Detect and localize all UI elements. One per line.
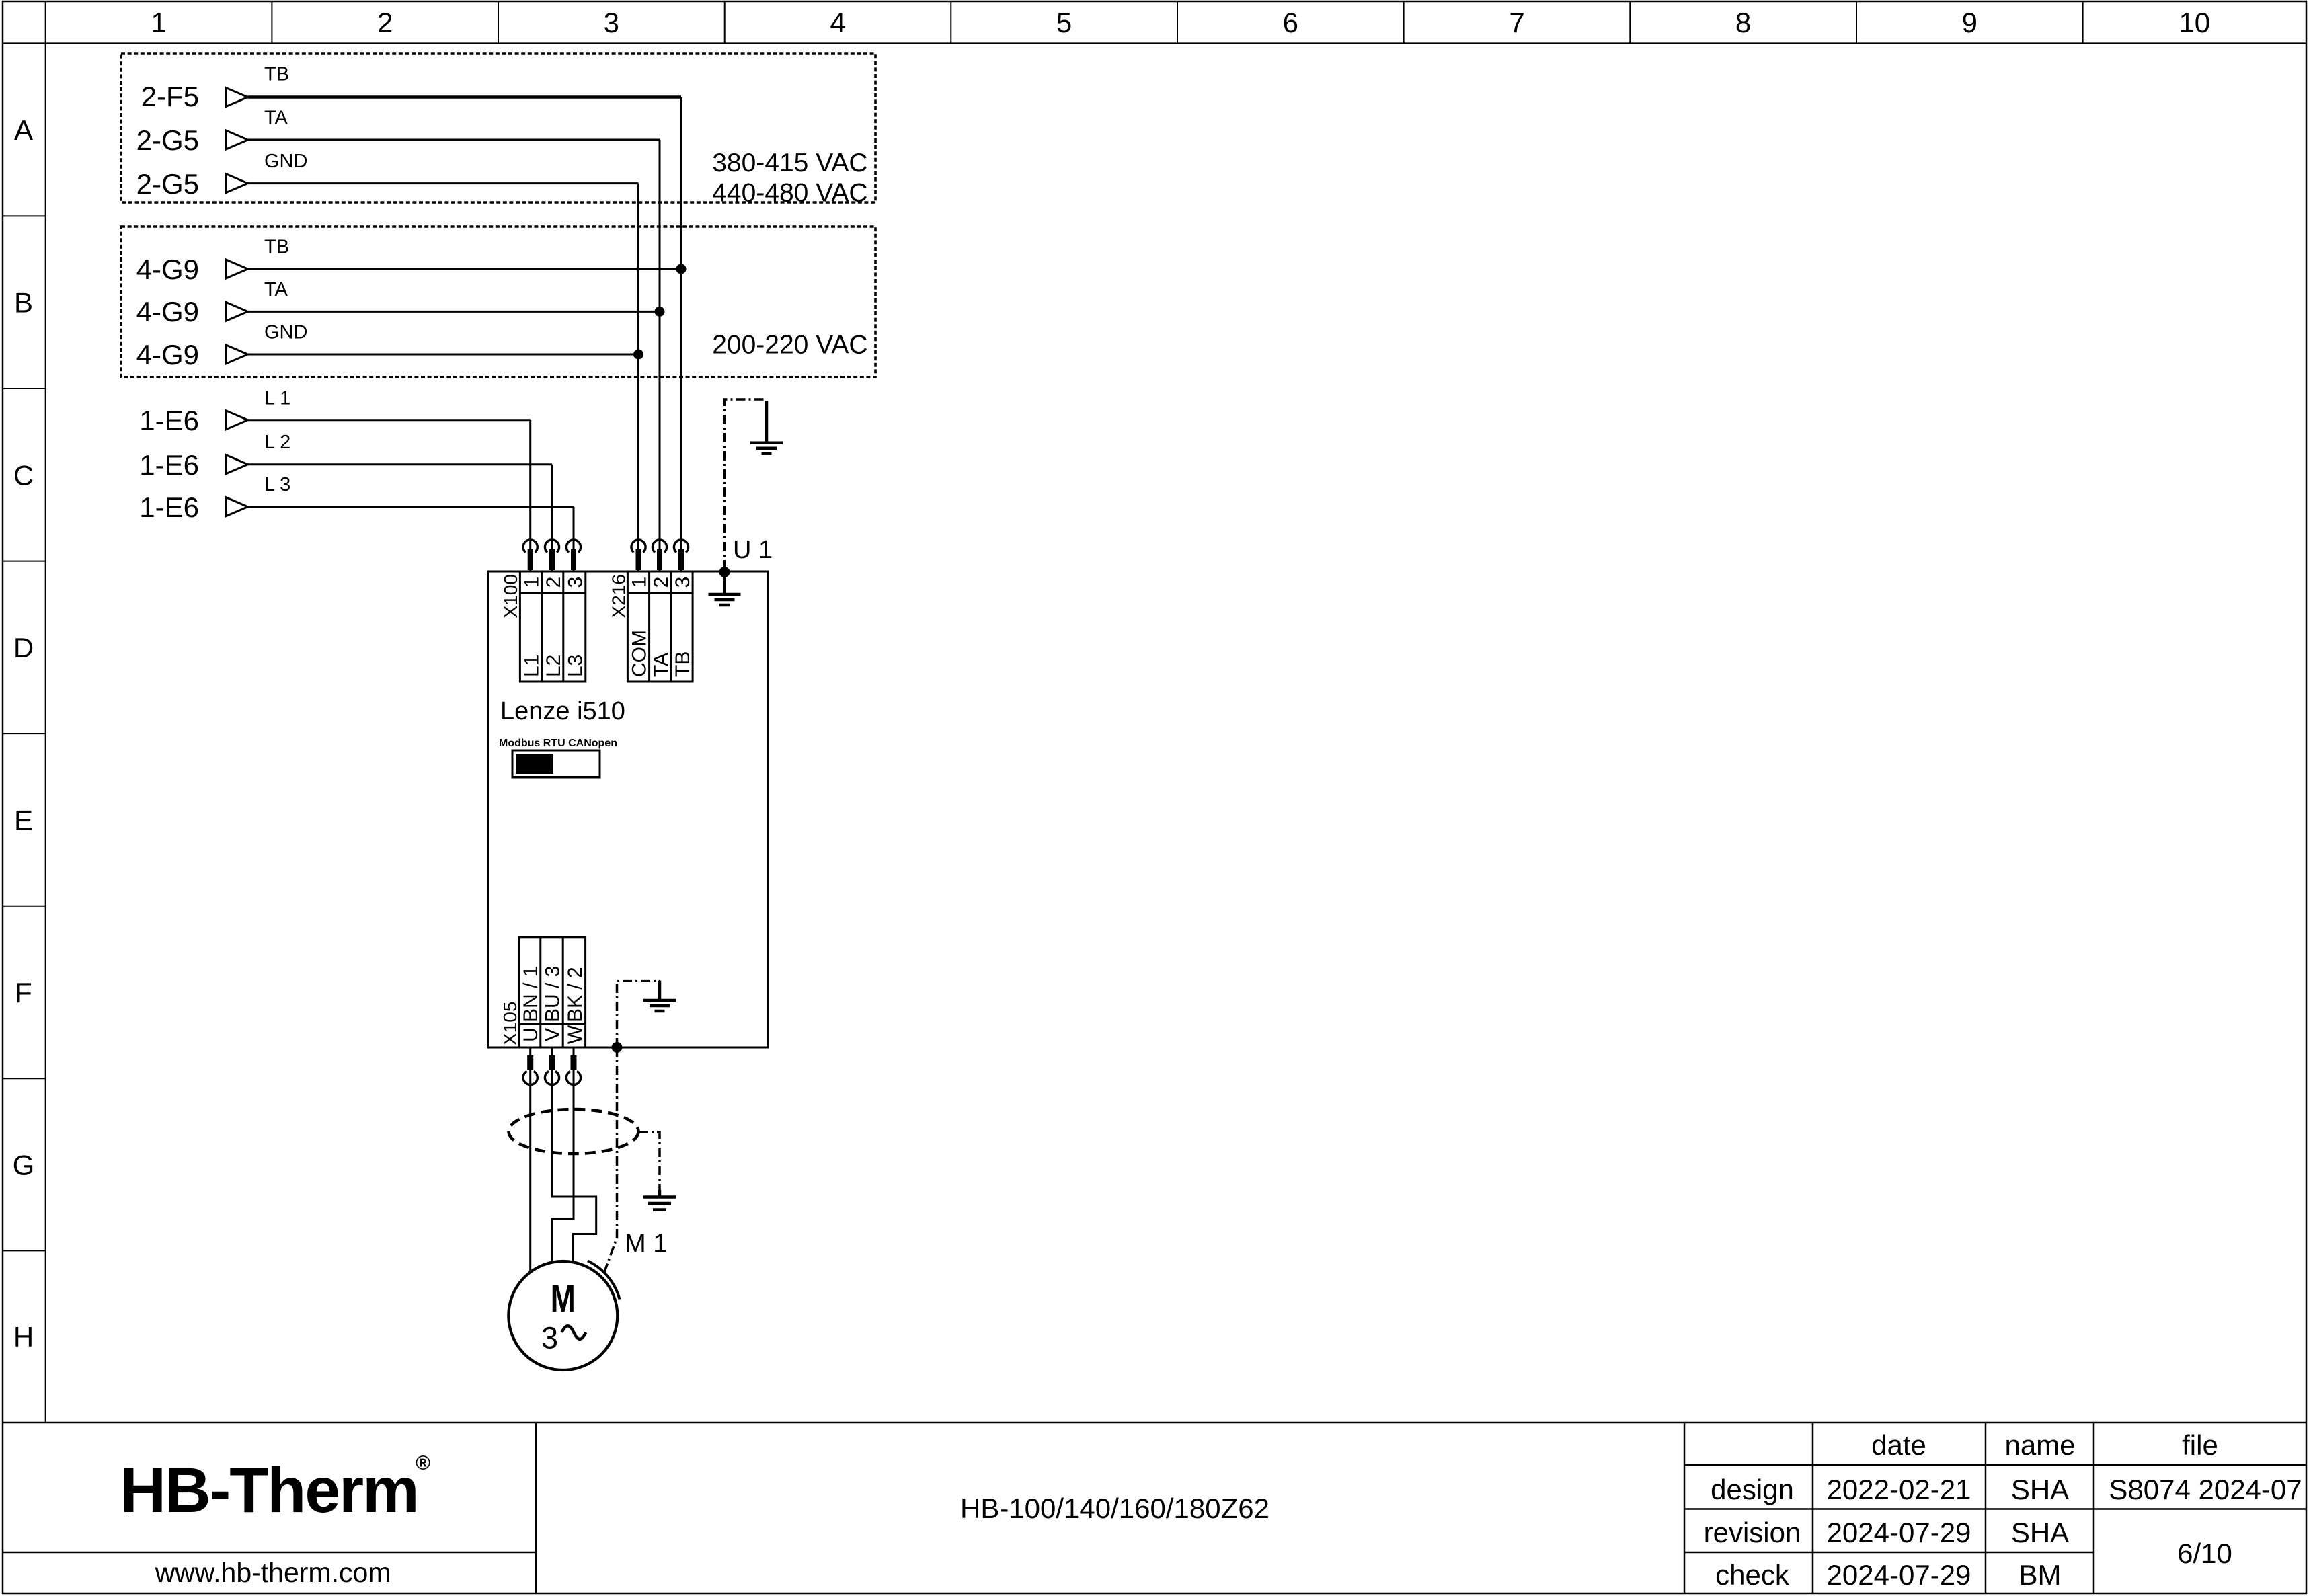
- svg-text:3: 3: [604, 7, 619, 38]
- svg-text:®: ®: [416, 1452, 430, 1474]
- svg-text:1-E6: 1-E6: [139, 405, 199, 436]
- svg-text:2: 2: [543, 577, 565, 588]
- svg-text:Lenze i510: Lenze i510: [500, 697, 625, 725]
- svg-text:4-G9: 4-G9: [136, 253, 199, 285]
- svg-text:TB: TB: [264, 64, 289, 85]
- svg-text:L3: L3: [564, 655, 586, 677]
- svg-text:4-G9: 4-G9: [136, 339, 199, 370]
- svg-text:COM: COM: [629, 630, 651, 677]
- svg-text:HB-Therm: HB-Therm: [120, 1455, 418, 1526]
- svg-text:4-G9: 4-G9: [136, 296, 199, 327]
- svg-text:HB-100/140/160/180Z62: HB-100/140/160/180Z62: [960, 1492, 1269, 1524]
- svg-text:3: 3: [672, 577, 694, 588]
- svg-text:2024-07-29: 2024-07-29: [1827, 1517, 1971, 1548]
- svg-text:6: 6: [1283, 7, 1298, 38]
- svg-text:BK / 2: BK / 2: [564, 967, 586, 1022]
- svg-text:L 1: L 1: [264, 387, 290, 409]
- svg-text:M: M: [551, 1277, 576, 1320]
- svg-text:BU / 3: BU / 3: [542, 966, 564, 1022]
- svg-text:U: U: [520, 1027, 542, 1042]
- svg-text:B: B: [14, 287, 33, 319]
- svg-text:X100: X100: [500, 574, 521, 618]
- svg-text:1-E6: 1-E6: [139, 449, 199, 481]
- svg-text:440-480 VAC: 440-480 VAC: [712, 179, 867, 208]
- svg-text:200-220 VAC: 200-220 VAC: [712, 331, 867, 360]
- svg-text:2-G5: 2-G5: [136, 168, 199, 200]
- svg-text:TB: TB: [672, 651, 694, 677]
- svg-text:2-G5: 2-G5: [136, 124, 199, 156]
- svg-text:2-F5: 2-F5: [141, 81, 199, 112]
- svg-text:6/10: 6/10: [2177, 1538, 2232, 1569]
- svg-text:GND: GND: [264, 322, 307, 344]
- svg-text:1: 1: [521, 577, 543, 588]
- svg-text:7: 7: [1509, 7, 1524, 38]
- svg-text:L2: L2: [543, 655, 565, 677]
- svg-text:A: A: [14, 114, 33, 146]
- svg-text:H: H: [13, 1321, 34, 1353]
- svg-text:name: name: [2004, 1429, 2075, 1461]
- svg-text:TA: TA: [264, 108, 288, 129]
- svg-text:3: 3: [564, 577, 586, 588]
- svg-text:V: V: [542, 1028, 564, 1041]
- svg-text:8: 8: [1735, 7, 1751, 38]
- svg-text:3: 3: [541, 1321, 558, 1355]
- svg-text:TA: TA: [264, 279, 288, 301]
- svg-text:SHA: SHA: [2011, 1517, 2069, 1548]
- svg-text:380-415 VAC: 380-415 VAC: [712, 149, 867, 177]
- svg-text:2024-07-29: 2024-07-29: [1827, 1559, 1971, 1591]
- svg-text:1-E6: 1-E6: [139, 491, 199, 523]
- svg-text:SHA: SHA: [2011, 1474, 2069, 1505]
- svg-text:W: W: [564, 1025, 586, 1044]
- svg-text:L 2: L 2: [264, 432, 290, 453]
- svg-text:2022-02-21: 2022-02-21: [1827, 1474, 1971, 1505]
- svg-text:L 3: L 3: [264, 474, 290, 495]
- svg-text:C: C: [13, 459, 34, 491]
- svg-text:5: 5: [1056, 7, 1072, 38]
- svg-text:1: 1: [629, 577, 651, 588]
- svg-text:G: G: [13, 1149, 35, 1181]
- svg-text:BN / 1: BN / 1: [520, 966, 542, 1022]
- svg-text:revision: revision: [1704, 1517, 1801, 1548]
- svg-text:2: 2: [377, 7, 393, 38]
- svg-text:D: D: [13, 632, 34, 664]
- svg-text:F: F: [15, 977, 32, 1008]
- svg-text:TB: TB: [264, 237, 289, 258]
- svg-text:X216: X216: [609, 574, 629, 618]
- svg-text:BM: BM: [2019, 1559, 2062, 1591]
- svg-text:E: E: [14, 804, 33, 836]
- svg-text:file: file: [2182, 1429, 2218, 1461]
- svg-text:1: 1: [151, 7, 166, 38]
- svg-text:L1: L1: [521, 655, 543, 677]
- svg-text:design: design: [1711, 1474, 1794, 1505]
- svg-text:X105: X105: [500, 1002, 520, 1045]
- svg-text:2: 2: [650, 577, 672, 588]
- svg-text:9: 9: [1962, 7, 1977, 38]
- svg-text:date: date: [1871, 1429, 1926, 1461]
- svg-text:M 1: M 1: [625, 1230, 667, 1258]
- svg-text:TA: TA: [650, 653, 672, 677]
- svg-text:U 1: U 1: [733, 536, 773, 564]
- svg-text:S8074 2024-07: S8074 2024-07: [2109, 1474, 2302, 1505]
- svg-text:Modbus RTU CANopen: Modbus RTU CANopen: [499, 737, 617, 749]
- svg-text:GND: GND: [264, 151, 307, 172]
- svg-text:check: check: [1715, 1559, 1790, 1591]
- svg-text:10: 10: [2179, 7, 2210, 38]
- svg-text:4: 4: [830, 7, 845, 38]
- svg-text:www.hb-therm.com: www.hb-therm.com: [155, 1557, 391, 1588]
